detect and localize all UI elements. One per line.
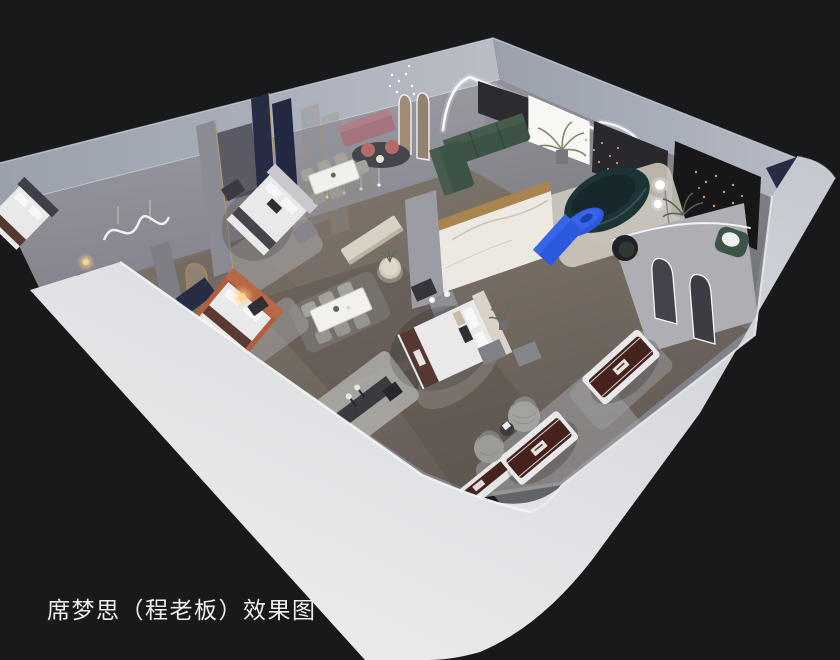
rendering-stage: 席梦思（程老板）效果图 — [0, 0, 840, 660]
showroom-rendering — [0, 0, 840, 660]
caption-text: 席梦思（程老板）效果图 — [47, 591, 317, 625]
